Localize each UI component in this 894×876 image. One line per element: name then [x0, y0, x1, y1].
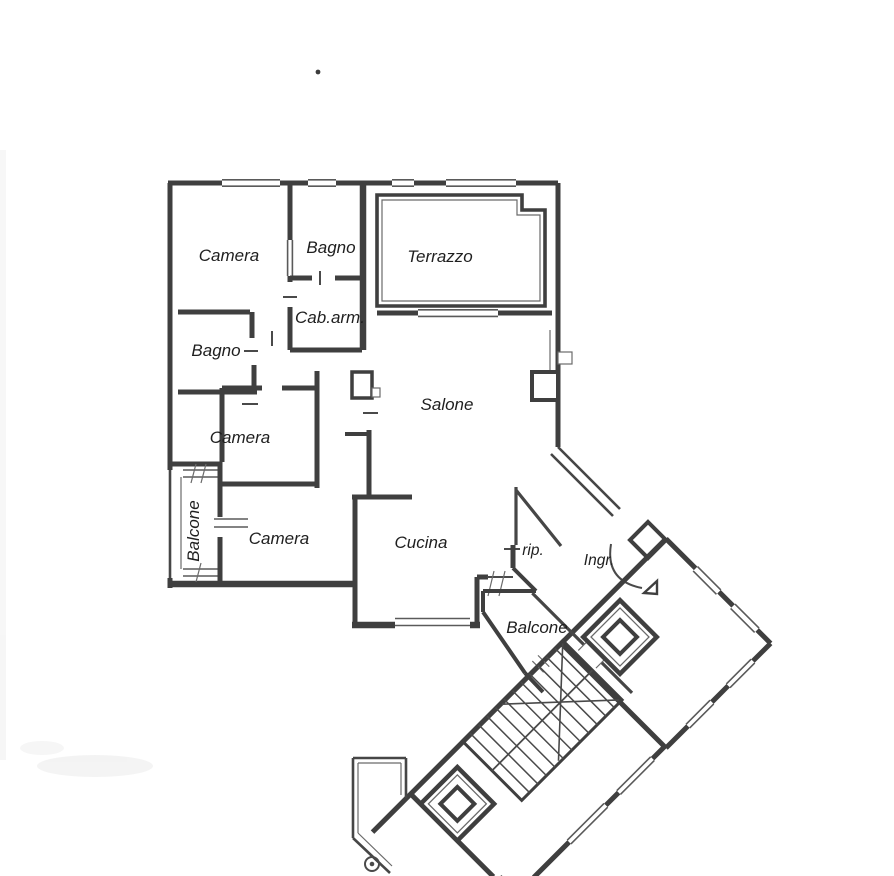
- room-label-terrazzo: Terrazzo: [407, 247, 473, 266]
- room-label-camera-top-left: Camera: [199, 246, 259, 265]
- scan-artifacts: [0, 150, 153, 777]
- kitchen-balcony-area: [483, 487, 561, 692]
- room-label-cucina: Cucina: [395, 533, 448, 552]
- room-label-camera-bottom: Camera: [249, 529, 309, 548]
- room-label-salone: Salone: [421, 395, 474, 414]
- lower-terrace: [353, 758, 406, 873]
- floor-plan-drawing: Camera Bagno Terrazzo Cab.arm. Bagno Cam…: [0, 0, 894, 876]
- room-label-balcone-left: Balcone: [184, 500, 203, 561]
- room-label-ingresso: Ingr.: [584, 552, 614, 569]
- room-label-camera-middle: Camera: [210, 428, 270, 447]
- door-swing-triangle: [644, 581, 657, 594]
- room-label-ripostiglio: rip.: [522, 542, 544, 559]
- room-labels: Camera Bagno Terrazzo Cab.arm. Bagno Cam…: [184, 238, 614, 637]
- room-label-bagno-left: Bagno: [191, 341, 240, 360]
- floor-plan-page: Camera Bagno Terrazzo Cab.arm. Bagno Cam…: [0, 0, 894, 876]
- stair-core: [333, 497, 774, 876]
- entry-jamb: [630, 522, 666, 558]
- room-label-balcone-bottom: Balcone: [506, 618, 567, 637]
- room-label-bagno-top: Bagno: [306, 238, 355, 257]
- elevator-2: [421, 767, 495, 841]
- room-label-cabina-armadio: Cab.arm.: [295, 308, 365, 327]
- ink-dot: [316, 70, 321, 75]
